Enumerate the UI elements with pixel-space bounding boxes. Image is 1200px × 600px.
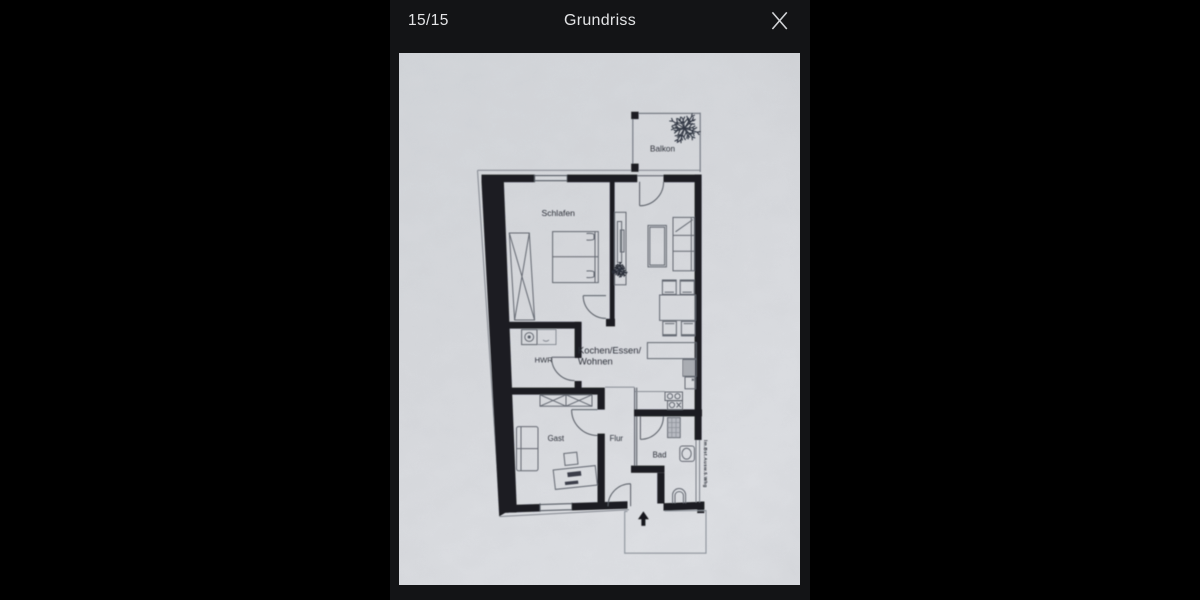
svg-text:Wohnen: Wohnen: [578, 356, 613, 367]
svg-text:HWR: HWR: [535, 355, 554, 364]
svg-text:Gast: Gast: [548, 434, 565, 443]
svg-text:Bad: Bad: [653, 451, 667, 460]
svg-text:lm.Bst.Ausw.5.Whg: lm.Bst.Ausw.5.Whg: [703, 440, 708, 488]
svg-text:Flur: Flur: [610, 434, 624, 443]
svg-text:Schlafen: Schlafen: [542, 208, 576, 218]
svg-text:Kochen/Essen/: Kochen/Essen/: [578, 345, 641, 356]
svg-text:Balkon: Balkon: [650, 145, 675, 154]
